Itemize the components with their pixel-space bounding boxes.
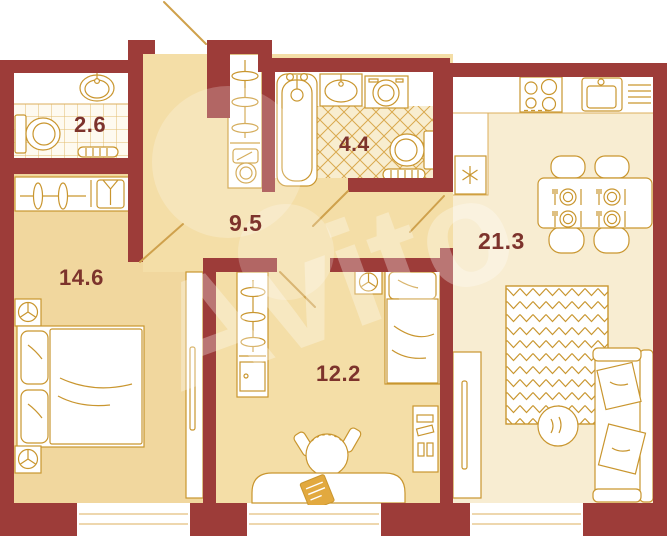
wardrobe — [15, 177, 130, 211]
pillow — [389, 272, 436, 299]
wall-right — [653, 63, 667, 536]
hanger-icon — [59, 183, 68, 209]
hanger-icon — [241, 313, 265, 322]
tv-panel — [453, 352, 481, 498]
entry-closet — [228, 54, 262, 188]
window-icon — [247, 505, 381, 536]
blanket — [50, 329, 142, 444]
chair — [595, 156, 629, 178]
washing-machine-icon — [365, 76, 408, 108]
wall-kitchen-top — [443, 63, 667, 77]
floor-plan-drawing — [0, 0, 667, 536]
bucket-icon — [236, 163, 256, 183]
bath-mat-icon — [78, 147, 118, 157]
ceiling-fan-icon — [355, 270, 382, 294]
sofa — [593, 348, 653, 502]
pillow — [21, 331, 48, 384]
chair — [549, 227, 584, 253]
single-bed — [385, 268, 440, 384]
wall-bedrooms-divider — [203, 258, 216, 503]
pouf-icon — [538, 406, 578, 446]
tv-panel — [186, 272, 203, 498]
wall-living-left — [440, 248, 453, 503]
blanket — [387, 299, 438, 383]
wardrobe — [237, 272, 268, 397]
bathtub-icon — [277, 74, 317, 186]
nightstand — [15, 446, 41, 473]
chair — [594, 227, 629, 253]
wall-wc-bottom — [14, 158, 128, 174]
wall-shelf — [413, 406, 438, 472]
stove-icon — [520, 77, 562, 112]
wall-bathroom-top — [262, 58, 450, 72]
chair — [551, 156, 585, 178]
toilet-icon — [15, 115, 60, 153]
bathroom-sink-icon — [320, 74, 362, 106]
hanger-icon — [241, 338, 265, 347]
toilet-icon — [390, 131, 436, 169]
kitchen-sink-icon — [582, 78, 622, 111]
hanger-icon — [241, 288, 265, 297]
fridge-icon — [455, 156, 486, 194]
window-icon — [470, 505, 583, 536]
windows — [77, 505, 583, 536]
nightstand — [15, 299, 41, 326]
hanger-icon — [34, 183, 43, 209]
entry-door-swing-icon — [164, 2, 206, 44]
double-bed — [17, 326, 144, 447]
floor-plan: Avito 2.6 4.4 9.5 14.6 21.3 12.2 — [0, 0, 667, 536]
wall-wc-right — [128, 40, 143, 262]
window-icon — [77, 505, 190, 536]
pillow — [21, 390, 48, 443]
